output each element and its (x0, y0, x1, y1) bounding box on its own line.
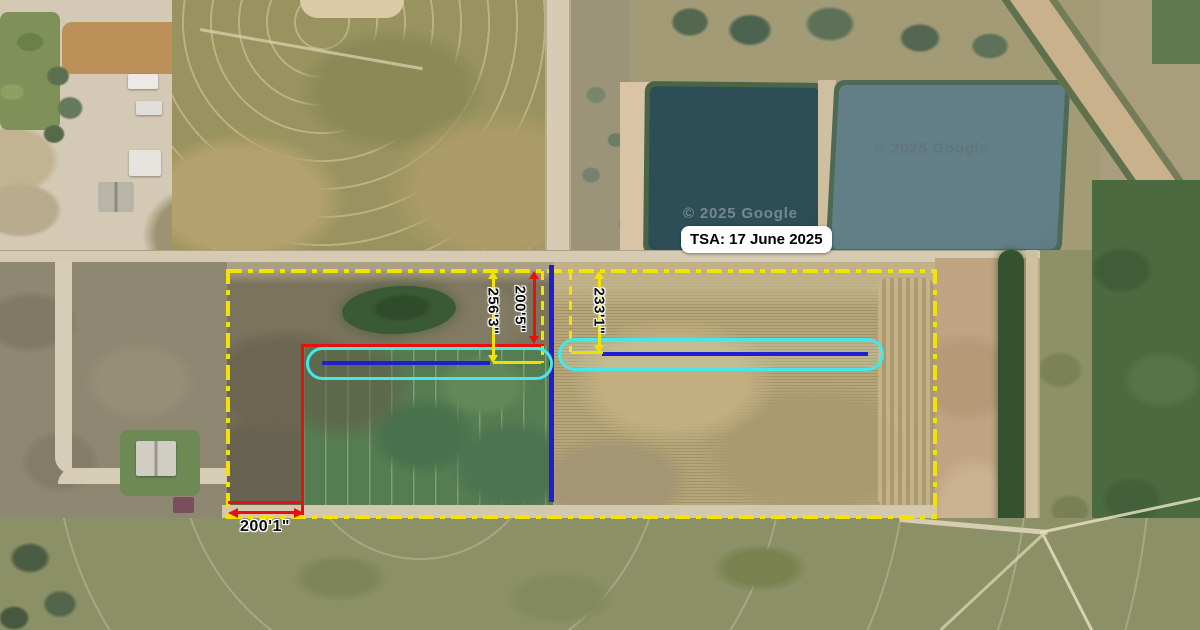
yellow-segment-left (493, 361, 541, 364)
boundary-top (227, 269, 935, 273)
satellite-map-canvas: 256'3" 200'5" 233'1" 200'1" TSA: 17 June… (0, 0, 1200, 630)
arrow-shaft (238, 511, 294, 514)
boundary-right (933, 269, 937, 519)
red-line-connector (228, 501, 303, 504)
center-pivot-field (172, 0, 560, 260)
arrowhead-down-icon (594, 345, 604, 353)
red-line-left (301, 344, 304, 515)
vertical-road (545, 0, 571, 258)
tsa-date-badge: TSA: 17 June 2025 (681, 226, 832, 253)
arrowhead-down-icon (529, 336, 539, 344)
barn-building (128, 74, 158, 89)
house-building (136, 441, 176, 476)
measurement-label-red-offset: 200'5" (512, 285, 529, 332)
barn-building (129, 150, 161, 176)
blue-run-right (602, 352, 868, 356)
boundary-bottom (227, 515, 937, 519)
south-pasture (0, 518, 1200, 630)
barn-building (136, 101, 162, 115)
farm-lane (55, 262, 72, 474)
blue-divider-line (549, 265, 554, 502)
dirt-patch (300, 0, 404, 18)
green-field-corner (1152, 0, 1200, 64)
pond-right (831, 85, 1066, 249)
imagery-watermark: © 2025 Google (874, 140, 989, 157)
harvest-row-band (878, 278, 934, 508)
shed-building (173, 497, 194, 513)
blue-run-left (322, 361, 490, 365)
tree-cluster (40, 60, 90, 146)
imagery-watermark: © 2025 Google (683, 205, 798, 222)
measurement-label-bottom-offset: 200'1" (240, 518, 290, 536)
pond-right-rim (825, 80, 1070, 254)
house-building (98, 182, 134, 212)
arrowhead-left-icon (228, 508, 238, 518)
arrow-shaft (533, 278, 536, 338)
measurement-label-left-width: 256'3" (485, 287, 502, 334)
arrowhead-down-icon (488, 355, 498, 363)
boundary-left (226, 269, 230, 519)
measurement-label-right-width: 233'1" (591, 287, 608, 334)
arrowhead-right-icon (294, 508, 304, 518)
